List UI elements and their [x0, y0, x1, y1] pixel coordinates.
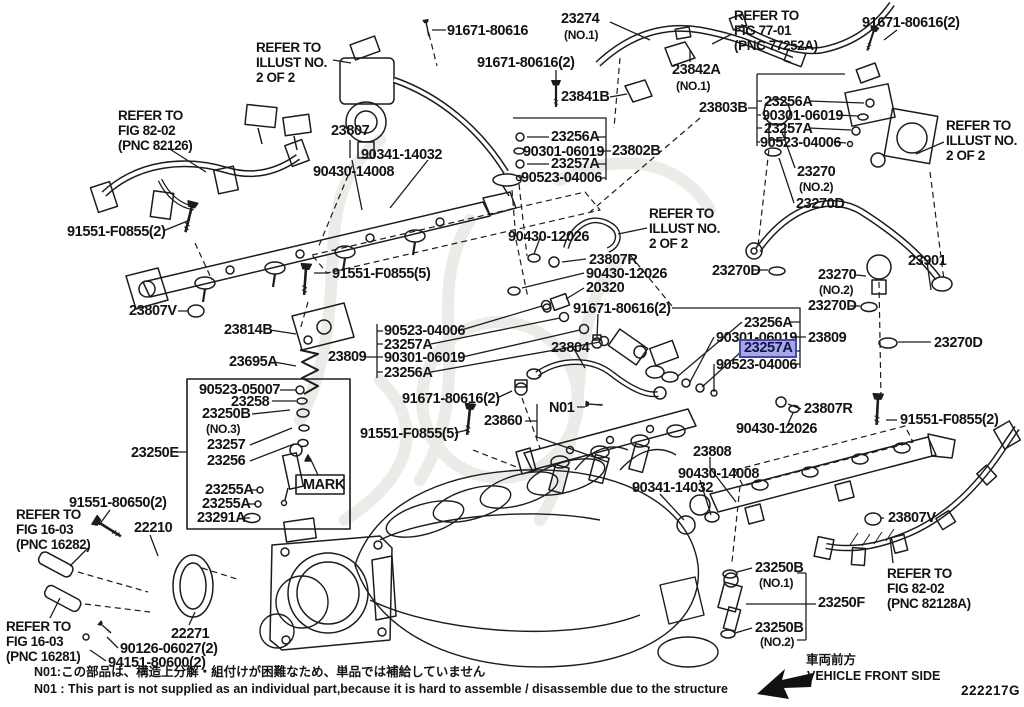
ref-illust-top-right: REFER TO ILLUST NO. 2 OF 2: [946, 118, 1017, 163]
part-label-90301-06019-c2[interactable]: 90301-06019: [384, 351, 465, 366]
part-label-91671-80616-2-b[interactable]: 91671-80616(2): [402, 392, 500, 407]
part-label-23842A[interactable]: 23842A: [672, 63, 720, 78]
part-label-90430-14008-t[interactable]: 90430-14008: [313, 165, 394, 180]
part-label-23804[interactable]: 23804: [551, 341, 589, 356]
part-label-23270-2[interactable]: 23270: [818, 268, 856, 283]
part-label-23270-1-no: (NO.2): [799, 181, 833, 193]
damper-23270-no2-2-art: [867, 255, 891, 279]
part-label-22210[interactable]: 22210: [134, 521, 172, 536]
part-label-23807R-2[interactable]: 23807R: [804, 402, 852, 417]
part-label-90523-04006-r2[interactable]: 90523-04006: [716, 358, 797, 373]
part-label-23803B[interactable]: 23803B: [699, 101, 747, 116]
cap-23807V-art: [188, 305, 204, 317]
part-label-91551-F0855-2-r[interactable]: 91551-F0855(2): [900, 413, 998, 428]
part-label-91671-80616-2-m[interactable]: 91671-80616(2): [573, 302, 671, 317]
part-label-23901[interactable]: 23901: [908, 254, 946, 269]
part-label-23270-2-no: (NO.2): [819, 284, 853, 296]
part-label-23250B-no2-sub: (NO.2): [760, 636, 794, 648]
note-ref-N01: N01: [549, 401, 574, 416]
part-label-23860[interactable]: 23860: [484, 414, 522, 429]
part-label-91551-F0855-5-b[interactable]: 91551-F0855(5): [360, 427, 458, 442]
part-label-90523-04006-r1[interactable]: 90523-04006: [760, 136, 841, 151]
part-label-90523-04006-c1[interactable]: 90523-04006: [521, 171, 602, 186]
ref-fig-82-02-left: REFER TO FIG 82-02 (PNC 82126): [118, 108, 192, 153]
throttle-body-22210-art: [37, 516, 396, 650]
ref-fig-77-01: REFER TO FIG 77-01 (PNC 77252A): [734, 8, 818, 53]
part-label-23256A-c2[interactable]: 23256A: [384, 366, 432, 381]
part-label-91551-F0855-2-l[interactable]: 91551-F0855(2): [67, 225, 165, 240]
vehicle-front-arrow: [757, 669, 813, 699]
part-label-23274[interactable]: 23274: [561, 12, 599, 27]
ref-fig-16-03-lower: REFER TO FIG 16-03 (PNC 16281): [6, 619, 80, 664]
pipe-23804-art: [527, 362, 666, 399]
part-label-22271[interactable]: 22271: [171, 627, 209, 642]
part-label-23695A[interactable]: 23695A: [229, 355, 277, 370]
part-label-23814B[interactable]: 23814B: [224, 323, 272, 338]
part-label-23807V-l[interactable]: 23807V: [129, 304, 177, 319]
part-label-23291A[interactable]: 23291A: [197, 511, 245, 526]
part-label-23802B[interactable]: 23802B: [612, 144, 660, 159]
part-label-23250B-no1-sub: (NO.1): [759, 577, 793, 589]
part-label-91551-F0855-5-t[interactable]: 91551-F0855(5): [332, 267, 430, 282]
part-label-23841B[interactable]: 23841B: [561, 90, 609, 105]
footnote-japanese: N01:この部品は、構造上分解・組付けが困難なため、単品では補給していません: [34, 666, 485, 679]
part-label-23250F[interactable]: 23250F: [818, 596, 865, 611]
part-label-91671-80616-2-c[interactable]: 91671-80616(2): [477, 56, 575, 71]
gasket-22271-art: [173, 555, 213, 617]
part-label-23809-l[interactable]: 23809: [328, 350, 366, 365]
part-label-23270D-1[interactable]: 23270D: [796, 197, 844, 212]
direction-label-jp: 車両前方: [806, 654, 856, 667]
part-label-23808[interactable]: 23808: [693, 445, 731, 460]
ref-illust-mid: REFER TO ILLUST NO. 2 OF 2: [649, 206, 720, 251]
part-label-23250B-no1[interactable]: 23250B: [755, 561, 803, 576]
diagram-code: 222217G: [961, 684, 1020, 698]
part-label-23256[interactable]: 23256: [207, 454, 245, 469]
part-label-23270D-2[interactable]: 23270D: [712, 264, 760, 279]
clamp-23841B-art: [625, 80, 652, 102]
ref-illust-top-left: REFER TO ILLUST NO. 2 OF 2: [256, 40, 327, 85]
ring-90430-art: [705, 512, 719, 522]
part-label-23250B-no2[interactable]: 23250B: [755, 621, 803, 636]
mark-annotation: MARK: [303, 478, 345, 493]
parts-diagram-canvas: REFER TO ILLUST NO. 2 OF 2 23274 (NO.1) …: [0, 0, 1024, 707]
ref-fig-82-02-right: REFER TO FIG 82-02 (PNC 82128A): [887, 566, 971, 611]
part-label-23270-1[interactable]: 23270: [797, 165, 835, 180]
cap-23807V-right-art: [865, 513, 881, 525]
ref-fig-16-03-upper: REFER TO FIG 16-03 (PNC 16282): [16, 507, 90, 552]
part-label-91671-80616-2-tr[interactable]: 91671-80616(2): [862, 16, 960, 31]
diagram-line-art: [0, 0, 1024, 707]
part-label-91671-80616[interactable]: 91671-80616: [447, 24, 528, 39]
part-label-23270D-3[interactable]: 23270D: [808, 299, 856, 314]
part-label-23274-no: (NO.1): [564, 29, 598, 41]
part-label-23807[interactable]: 23807: [331, 124, 369, 139]
footnote-english: N01 : This part is not supplied as an in…: [34, 683, 728, 696]
part-label-23250B-no3-sub: (NO.3): [206, 423, 240, 435]
injector-harness-right-art: [814, 421, 1020, 565]
part-label-90430-12026-b[interactable]: 90430-12026: [736, 422, 817, 437]
part-label-23270D-4[interactable]: 23270D: [934, 336, 982, 351]
part-label-90341-14032-t[interactable]: 90341-14032: [361, 148, 442, 163]
part-label-23257[interactable]: 23257: [207, 438, 245, 453]
part-label-23250B-no3[interactable]: 23250B: [202, 407, 250, 422]
part-label-23256A-c1[interactable]: 23256A: [551, 130, 599, 145]
part-label-23250E[interactable]: 23250E: [131, 446, 179, 461]
part-label-23256A-r2[interactable]: 23256A: [744, 316, 792, 331]
part-label-23807V-r[interactable]: 23807V: [888, 511, 936, 526]
part-label-20320[interactable]: 20320: [586, 281, 624, 296]
injector-23250F-art: [718, 570, 742, 638]
part-label-90341-14032-b[interactable]: 90341-14032: [632, 481, 713, 496]
part-label-23809-r[interactable]: 23809: [808, 331, 846, 346]
part-label-90430-12026-t[interactable]: 90430-12026: [508, 230, 589, 245]
part-label-23257A-selected[interactable]: 23257A: [739, 339, 797, 358]
part-label-23842A-no: (NO.1): [676, 80, 710, 92]
direction-label-en: VEHICLE FRONT SIDE: [807, 670, 940, 683]
